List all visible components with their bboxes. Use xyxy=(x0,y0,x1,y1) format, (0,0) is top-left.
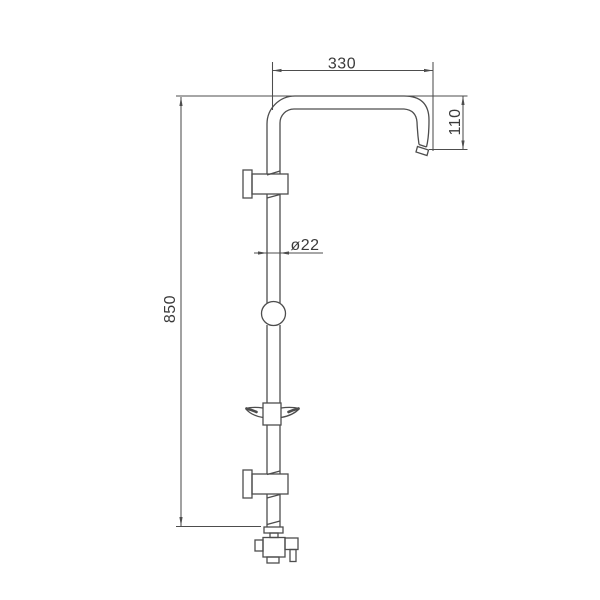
diverter-left-knob xyxy=(255,540,263,551)
bracket-body xyxy=(252,174,288,194)
slider-knob xyxy=(262,302,286,326)
diverter-body xyxy=(263,538,285,558)
pipe-break-mark xyxy=(267,195,280,199)
soap-dish xyxy=(246,403,300,425)
shower-arm-connector-band xyxy=(416,147,429,156)
dimension-label-arm-drop: 110 xyxy=(447,108,464,135)
bracket-body xyxy=(252,474,288,494)
shower-arm-outer-edge xyxy=(267,96,429,174)
diverter-valve xyxy=(255,527,298,563)
arrowhead-right xyxy=(424,69,433,72)
dimension-label-rail-height: 850 xyxy=(162,295,179,323)
shower-arm xyxy=(267,96,429,174)
technical-drawing-canvas: 330 110 ø22 850 xyxy=(0,0,600,600)
arrowhead-bottom xyxy=(179,517,182,526)
diverter-neck xyxy=(270,533,278,538)
dimension-rail-height: 850 xyxy=(162,97,261,527)
slider-knob-circle xyxy=(262,302,286,326)
diverter-right-arm xyxy=(285,538,298,550)
pipe-break-mark xyxy=(267,495,280,499)
diverter-cap xyxy=(264,527,283,533)
arrowhead-left xyxy=(273,69,282,72)
dimension-label-pipe-diameter: ø22 xyxy=(290,237,319,254)
arrowhead-top xyxy=(461,96,464,105)
soap-dish-hub xyxy=(263,403,281,425)
hose-outlet-pipe xyxy=(290,550,296,562)
wall-bracket-bottom xyxy=(243,470,288,498)
arrowhead-bottom xyxy=(461,141,464,150)
bracket-flange xyxy=(243,470,252,498)
arrowhead-top xyxy=(179,97,182,106)
dimension-label-arm-length: 330 xyxy=(328,56,356,73)
shower-column-technical-drawing: 330 110 ø22 850 xyxy=(0,0,600,600)
shower-arm-tip-cut xyxy=(419,145,427,148)
pipe-break-mark xyxy=(267,521,280,525)
arrowhead-right xyxy=(280,251,289,254)
dimension-pipe-diameter: ø22 xyxy=(254,237,323,255)
wall-bracket-top xyxy=(243,170,288,198)
arrowhead-left xyxy=(258,251,267,254)
shower-arm-inner-edge xyxy=(280,109,419,174)
dimension-arm-length: 330 xyxy=(273,56,434,152)
bracket-flange xyxy=(243,170,252,198)
diverter-bottom-outlet xyxy=(267,557,279,563)
